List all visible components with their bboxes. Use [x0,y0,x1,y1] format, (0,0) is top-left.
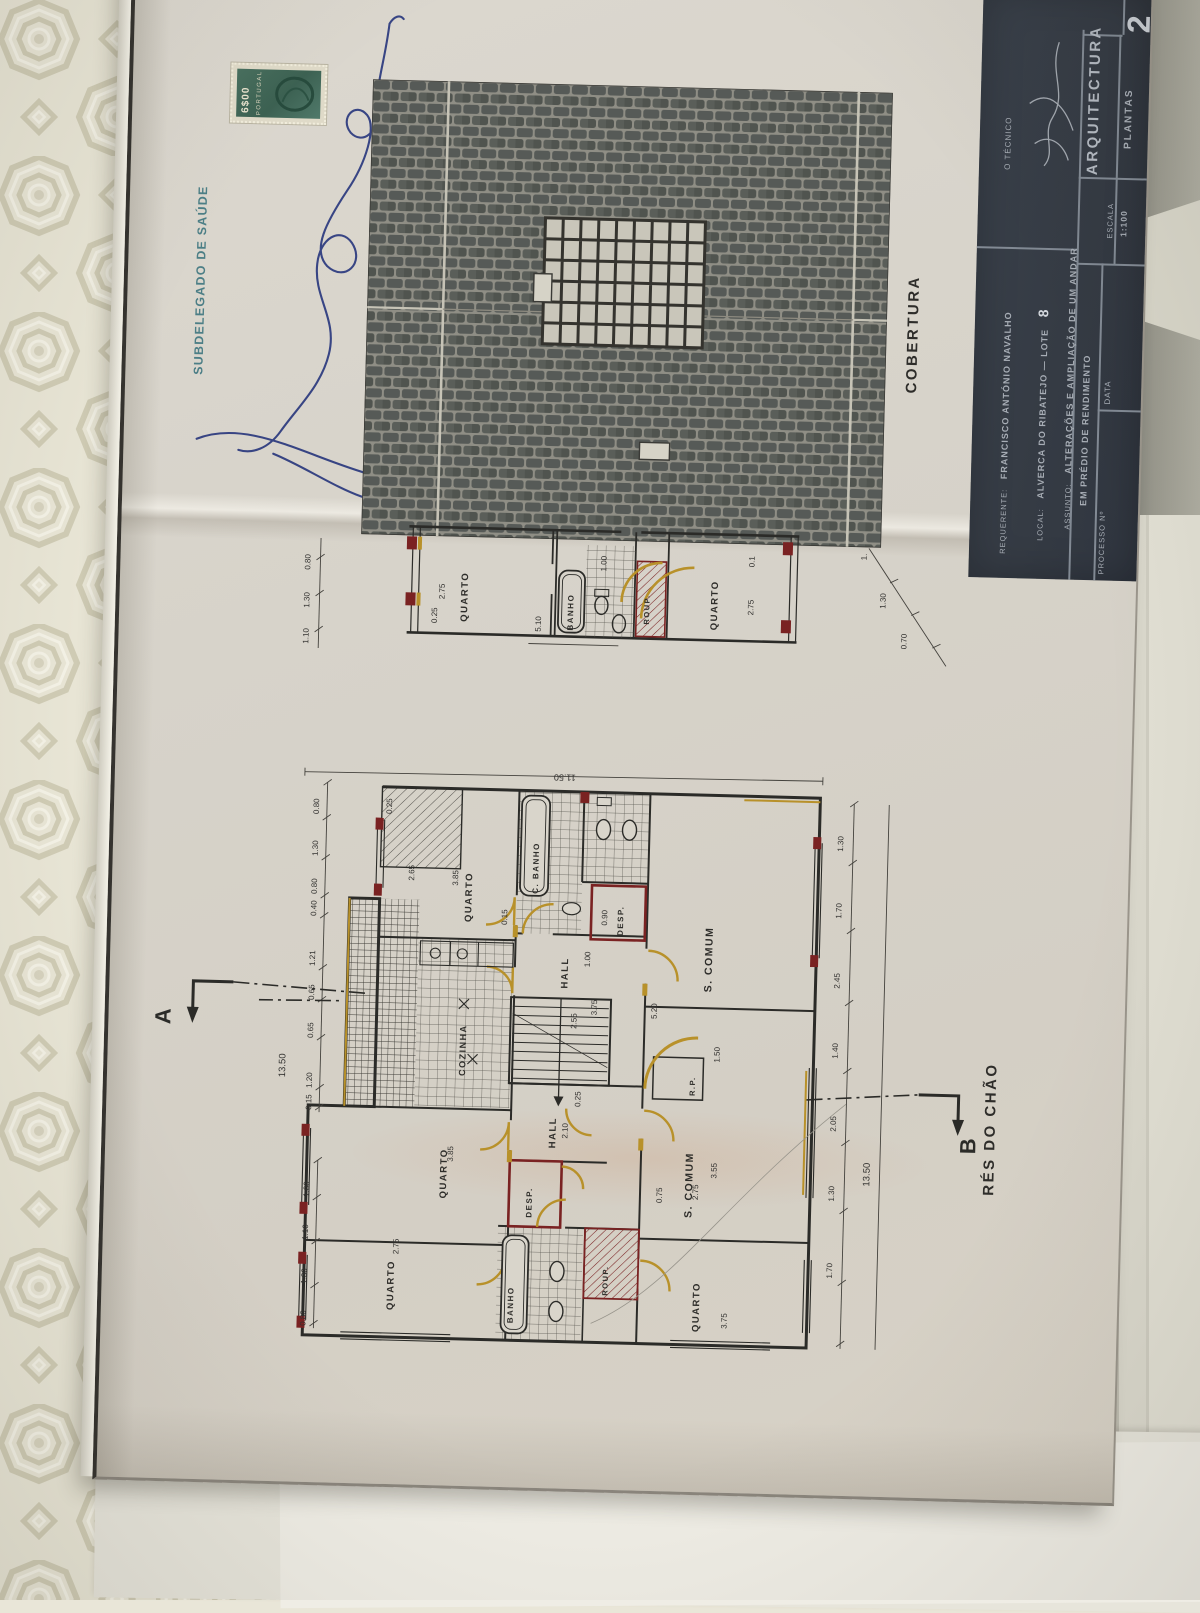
dim: 1.00 [583,951,592,967]
content-type: PLANTAS [1123,88,1136,149]
dim: 5.20 [650,1003,659,1019]
local-label: LOCAL: [1035,508,1045,541]
dim: 0.80 [310,878,319,894]
dim: 1.30 [836,836,845,852]
kitchen-tiles [414,938,513,1108]
room-label: QUARTO [463,872,475,922]
dim: 1.00 [302,1181,311,1197]
escala-label: ESCALA [1105,203,1115,239]
room-label: C. BANHO [531,842,541,894]
assunto-row: ASSUNTO: ALTERAÇÕES E AMPLIAÇÃO DE UM AN… [1062,247,1079,530]
processo-label: PROCESSO Nº [1096,511,1107,575]
dim: 1.10 [301,1224,310,1240]
dim: 0.1 [747,556,756,568]
discipline: ARQUITECTURA [1084,25,1105,175]
dim: 2.55 [569,1013,578,1029]
dim: 2.75 [438,583,447,599]
room-label: ROUP. [600,1265,610,1296]
room-label: COZINHA [457,1024,468,1076]
escala-value: 1:100 [1118,210,1129,237]
dim: 0.25 [573,1091,582,1107]
titleblock-divider [1079,177,1147,180]
assunto-line1: ALTERAÇÕES E AMPLIAÇÃO DE UM ANDAR [1063,247,1079,474]
dim: 1.40 [831,1042,840,1058]
dim: 2.45 [832,972,841,988]
roof-plan-drawing [361,79,893,547]
dim: 1.20 [305,1072,314,1088]
dim: 0.40 [309,900,318,916]
dim: 0.80 [312,798,321,814]
dim: 3.55 [709,1162,718,1178]
roof-skylight [542,218,705,348]
ground-floor-caption: RÉS DO CHÃO [980,1062,1000,1196]
tecnico-signature [1014,33,1088,180]
dim: 1.50 [712,1046,721,1062]
room-label: DESP. [524,1187,534,1218]
assunto-label: ASSUNTO: [1063,483,1073,529]
title-block: 2 O TÉCNICO ARQUITECTURA PLANTAS ESCALA … [968,0,1151,581]
dim-overall: 11.50 [554,772,576,783]
room-label: ROUP. [642,594,652,625]
dim: 1.00 [599,555,608,571]
dim: 1.30 [827,1185,836,1201]
titleblock-divider [1098,409,1141,412]
room-label: HALL [547,1117,559,1149]
dim: 2.75 [391,1238,400,1254]
room-label: R.P. [688,1076,698,1096]
dim: 2.75 [691,1184,700,1200]
dim: 1. [860,553,869,560]
dim: 0.90 [600,909,609,925]
upper-floor-plan-drawing: QUARTO BANHO ROUP. QUARTO 0.25 2.75 5.10… [288,497,992,675]
dim: 3.75 [590,999,599,1015]
dim: 1.30 [878,593,887,609]
room-label: QUARTO [690,1282,702,1332]
dim: 1.30 [300,1268,309,1284]
section-letter-b: B [955,1138,980,1155]
dim-overall: 13.50 [277,1053,289,1077]
section-marker-a: A [148,966,370,1042]
dim: 0.75 [655,1187,664,1203]
dim: 1.30 [302,591,311,607]
room-label: BANHO [506,1286,516,1323]
dim: 5.10 [534,616,543,632]
dim: 1.10 [301,627,310,643]
room-label: QUARTO [709,580,721,630]
tecnico-label: O TÉCNICO [1003,116,1013,170]
local-value: ALVERCA DO RIBATEJO — LOTE [1035,329,1049,499]
dim: 2.10 [560,1122,569,1138]
roof-chimney-bottom [639,442,669,460]
room-label: DESP. [616,905,626,936]
lote-number: 8 [1035,308,1051,317]
dim: 0.25 [385,798,394,814]
room-label: QUARTO [385,1260,397,1310]
dim: 1.21 [308,950,317,966]
requerente-value: FRANCISCO ANTÓNIO NAVALHO [999,311,1013,479]
data-label: DATA [1103,380,1113,404]
requerente-label: REQUERENTE: [998,489,1009,554]
section-letter-a: A [150,1008,175,1025]
titleblock-divider [1076,263,1144,266]
dim: 0.80 [303,553,312,569]
dim: 0.15 [304,1094,313,1110]
upper-bath-tiles [585,545,636,638]
dim: 3.85 [451,869,460,885]
dim: 0.80 [298,1310,307,1326]
assunto-line2: EM PRÉDIO DE RENDIMENTO [1078,355,1092,507]
local-row: LOCAL: ALVERCA DO RIBATEJO — LOTE 8 [1029,308,1051,541]
dim: 2.65 [407,864,416,880]
dim: 1.30 [311,840,320,856]
dim: 3.75 [720,1313,729,1329]
room-label: S. COMUM [702,927,716,993]
dim: 0.15 [500,909,509,925]
room-label: HALL [559,957,571,989]
titleblock-divider [977,246,1077,250]
architectural-drawing-sheet: 6$00 PORTUGAL SUBDELEGADO DE SAÚDE [92,0,1153,1506]
sheet-number: 2 [1121,15,1158,34]
dim: 2.75 [746,599,755,615]
dim-overall: 13.50 [861,1163,873,1187]
roof-plan-caption: COBERTURA [903,275,923,394]
dim: 0.25 [430,607,439,623]
dim: 3.85 [446,1145,455,1161]
dim: 1.70 [825,1262,834,1278]
room-label: QUARTO [459,572,471,622]
roof-chimney-left [533,274,552,302]
room-label: BANHO [566,594,576,631]
dim: 1.70 [834,902,843,918]
requerente-row: REQUERENTE: FRANCISCO ANTÓNIO NAVALHO [997,311,1013,554]
dim: 0.70 [899,633,908,649]
